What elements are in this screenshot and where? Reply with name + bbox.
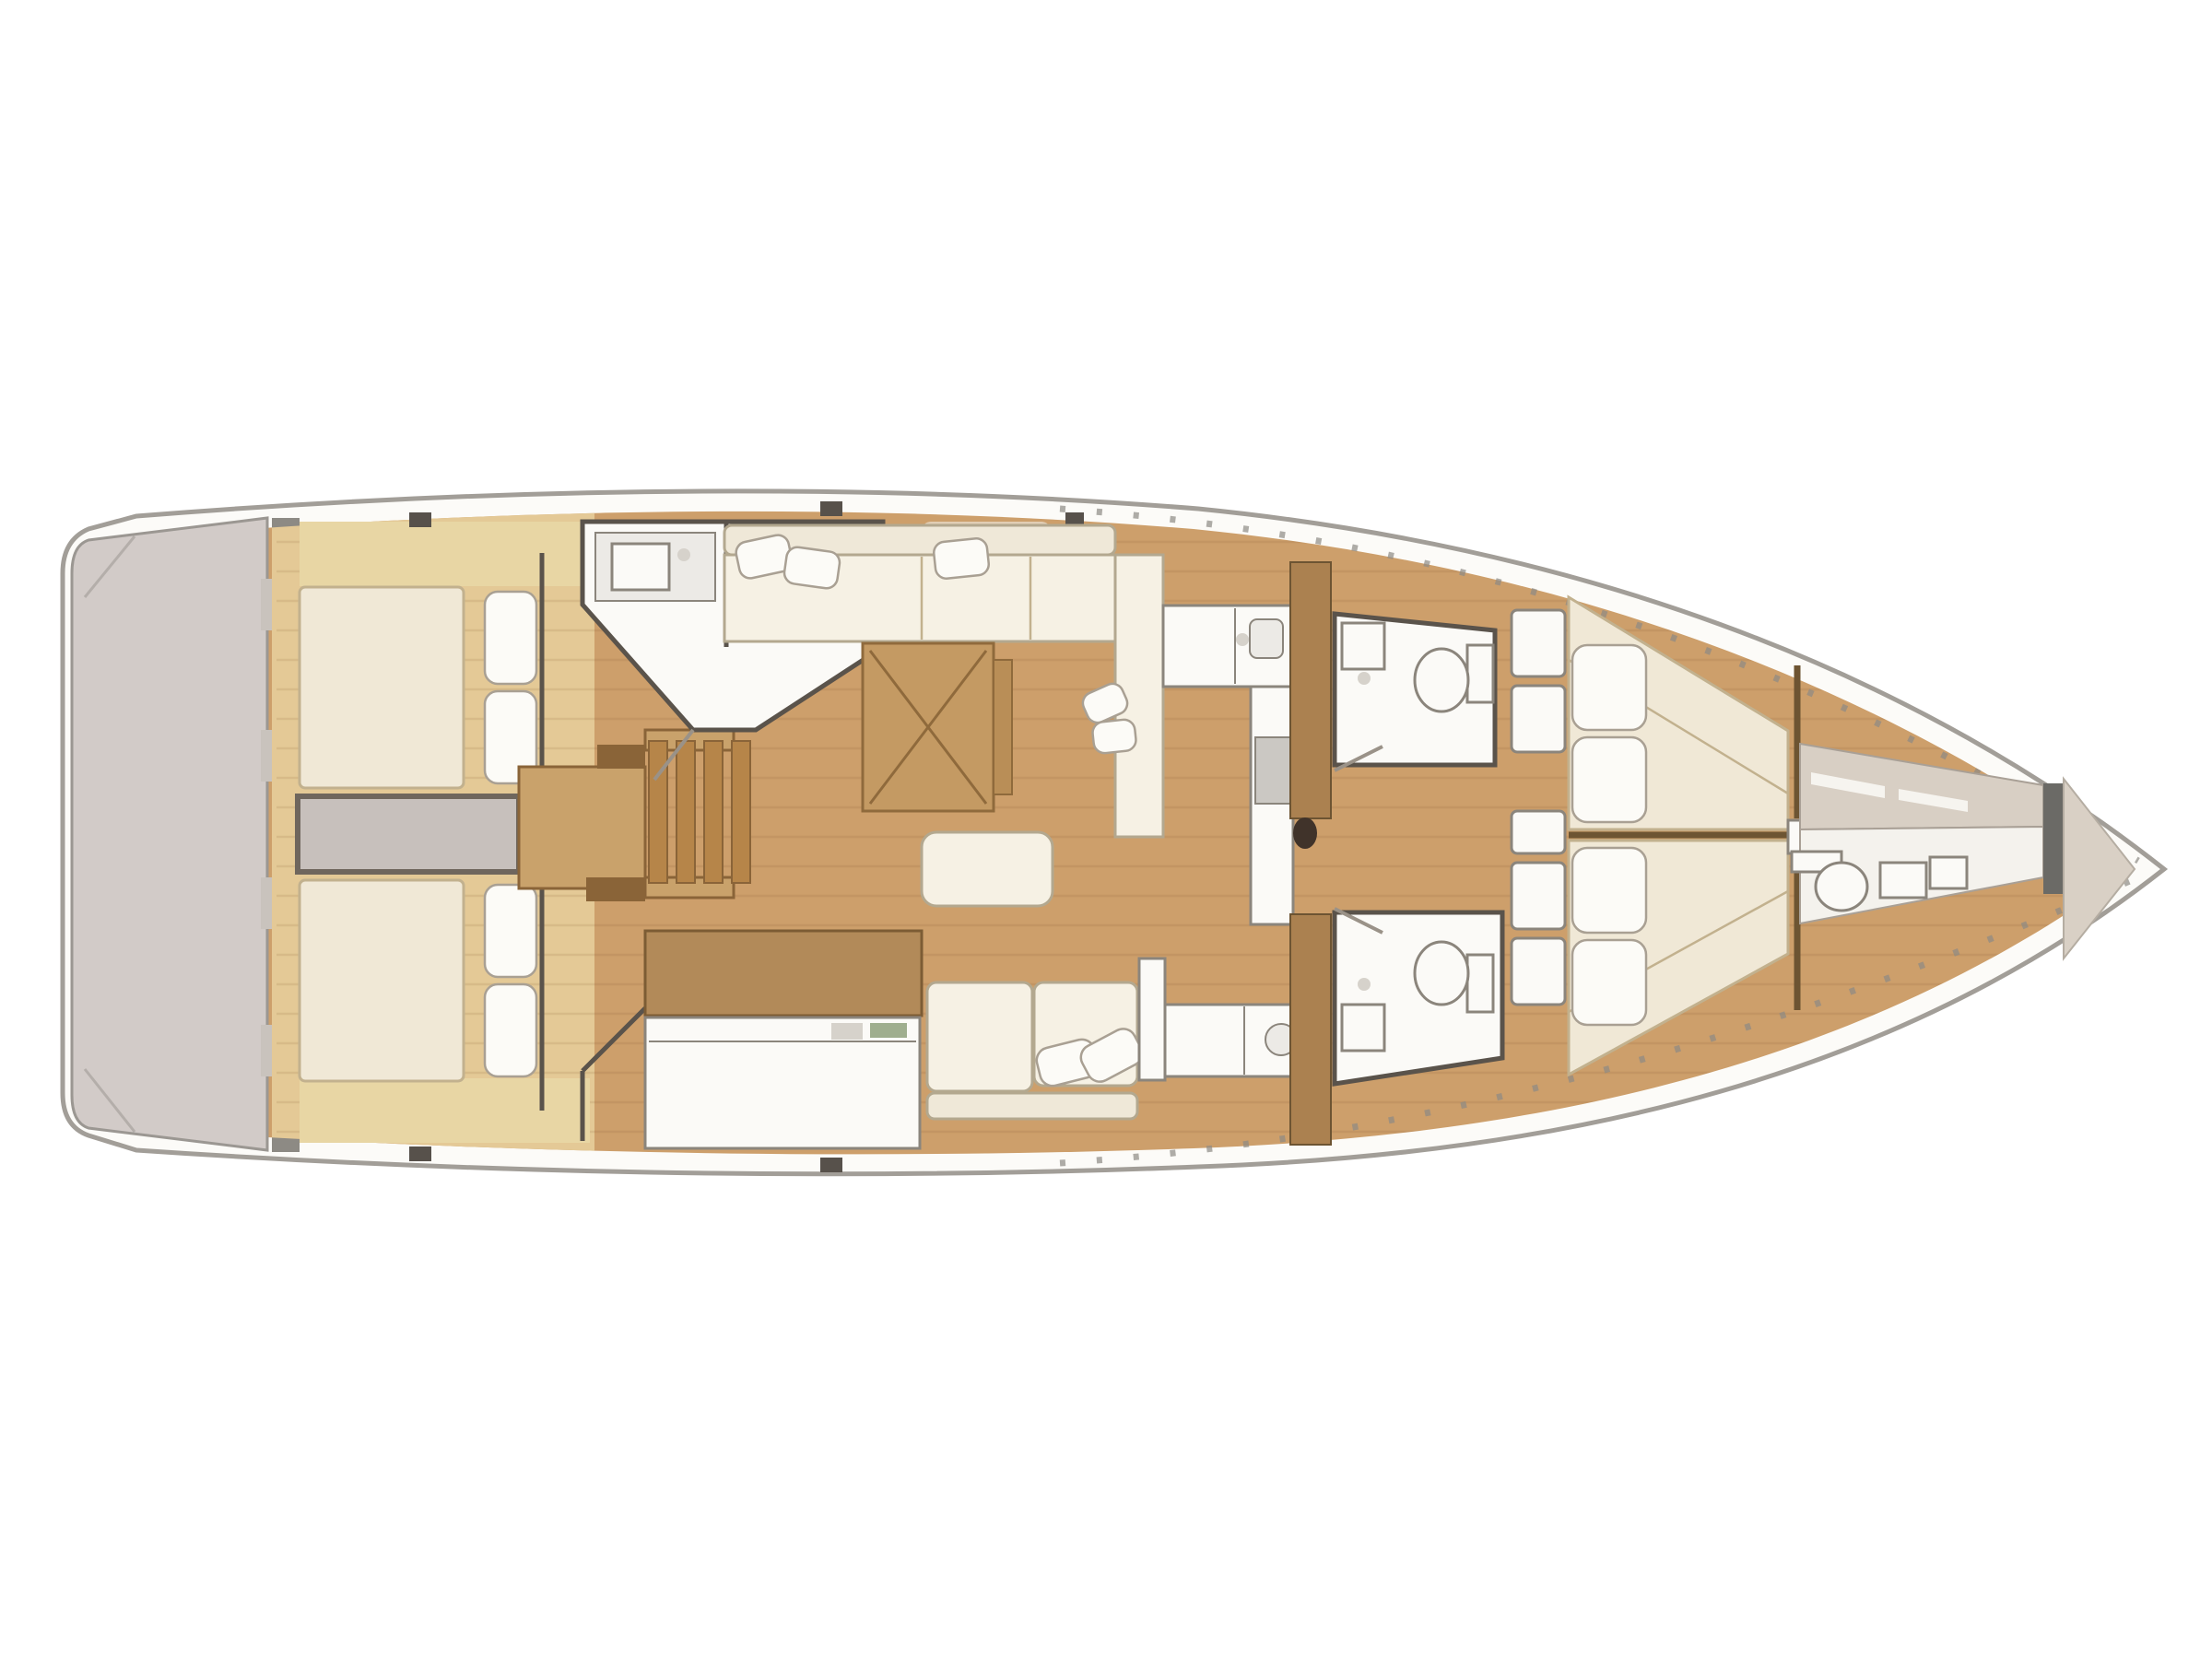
day-head-faucet <box>677 548 690 561</box>
galley-faucet <box>1236 633 1249 646</box>
aft-cabin-starboard <box>300 880 542 1111</box>
mast-foot <box>1293 817 1317 849</box>
forward-head-port-tank <box>1467 645 1493 702</box>
bulkhead-band-top <box>1290 562 1331 818</box>
head-forward-port <box>1335 614 1495 770</box>
head-forward-starboard <box>1335 909 1502 1084</box>
swim-platform-deck <box>72 518 267 1150</box>
forward-head-port-sink <box>1342 623 1384 669</box>
owner-shelf-5 <box>1512 938 1565 1005</box>
stair-step-1 <box>649 741 667 883</box>
forward-head-starboard-sink <box>1342 1005 1384 1051</box>
forward-head-port-toilet <box>1415 649 1468 711</box>
starboard-sofa-back <box>927 1093 1137 1119</box>
forward-head-starboard-toilet <box>1415 942 1468 1005</box>
stair-step-2 <box>677 741 695 883</box>
aft-starboard-pillow-1 <box>485 885 536 977</box>
deck-cleat-3 <box>1065 512 1084 525</box>
galley-bottom-leg <box>1139 958 1165 1080</box>
forward-head-starboard-faucet <box>1358 978 1371 991</box>
anchor-locker <box>2064 779 2135 958</box>
aft-port-pillow-1 <box>485 592 536 684</box>
crew-toilet-bowl <box>1816 863 1867 911</box>
stair-step-3 <box>704 741 723 883</box>
aft-starboard-berth <box>300 880 464 1081</box>
yacht-floor-plan <box>0 0 2212 1658</box>
aft-starboard-pillow-2 <box>485 984 536 1076</box>
nav-cabinet <box>645 931 922 1016</box>
owner-pillow-2 <box>1572 737 1646 822</box>
owner-pillow-3 <box>1572 848 1646 933</box>
stairs-rail-bottom <box>586 877 645 901</box>
aft-deck-band-top <box>300 522 590 586</box>
stairs-rail-top <box>597 745 645 769</box>
owner-shelf-1 <box>1512 610 1565 676</box>
forward-head-starboard-tank <box>1467 955 1493 1012</box>
galley-side-counter <box>1251 687 1293 924</box>
crew-bench-1 <box>1880 863 1926 898</box>
deck-cleat-2 <box>820 501 842 516</box>
day-head-sink <box>612 544 669 590</box>
forward-head-port-faucet <box>1358 672 1371 685</box>
aft-deck-band-bottom <box>300 1078 590 1143</box>
crew-bench-2 <box>1930 857 1967 888</box>
nav-chart-accent <box>870 1023 907 1038</box>
engine-walkway <box>298 796 519 872</box>
owner-shelf-2 <box>1512 686 1565 752</box>
deck-cleat-1 <box>409 512 431 527</box>
table-side-leaf <box>994 660 1012 794</box>
galley-stove <box>1255 737 1290 804</box>
aft-port-berth <box>300 587 464 788</box>
nav-instrument <box>831 1023 863 1040</box>
stair-step-4 <box>732 741 750 883</box>
galley-sink <box>1250 619 1283 658</box>
owner-shelf-3 <box>1512 811 1565 853</box>
sofa-throw-pillow-2 <box>782 546 841 590</box>
owner-pillow-1 <box>1572 645 1646 730</box>
deck-cleat-4 <box>409 1146 431 1161</box>
deck-cleat-5 <box>820 1158 842 1172</box>
starboard-sofa-seat-1 <box>927 982 1032 1091</box>
salon-bench <box>922 832 1053 906</box>
sofa-throw-pillow-3 <box>933 537 990 580</box>
swim-platform <box>72 518 267 1150</box>
stairs-landing <box>519 767 645 888</box>
salon-sofa-starboard <box>927 982 1147 1119</box>
sofa-corner-cushion-2 <box>1091 719 1136 755</box>
bulkhead-band-bottom <box>1290 914 1331 1145</box>
collision-bulkhead <box>2043 783 2064 894</box>
owner-shelf-4 <box>1512 863 1565 929</box>
floor-plan-canvas <box>0 0 2212 1658</box>
owner-pillow-4 <box>1572 940 1646 1025</box>
